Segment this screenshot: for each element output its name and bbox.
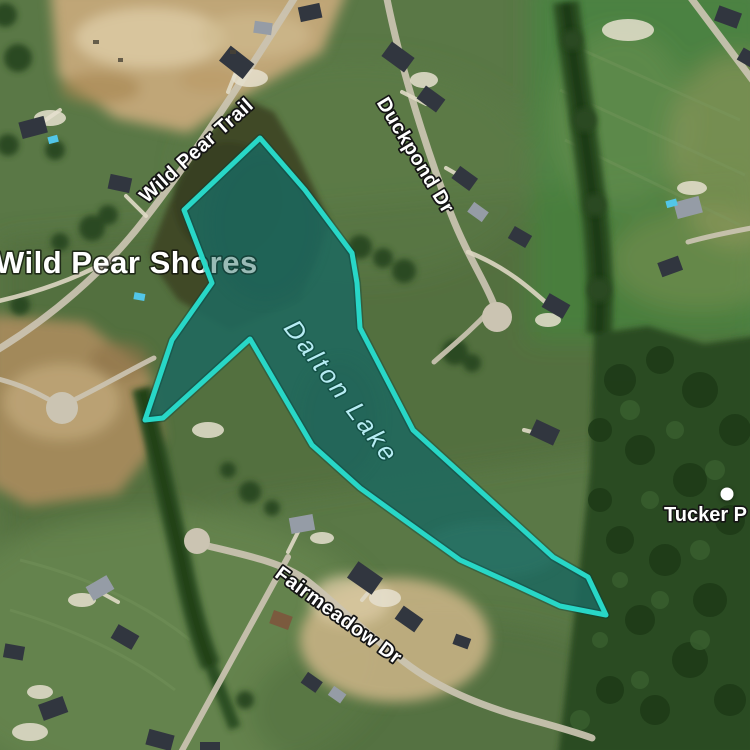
poi-white-dot-icon[interactable] — [721, 488, 734, 501]
map-viewport[interactable]: Wild Pear Shores Wild Pear Trail Duckpon… — [0, 0, 750, 750]
poi-label-tucker[interactable]: Tucker P — [664, 504, 747, 526]
map-canvas[interactable]: Wild Pear Shores Wild Pear Trail Duckpon… — [0, 0, 750, 750]
